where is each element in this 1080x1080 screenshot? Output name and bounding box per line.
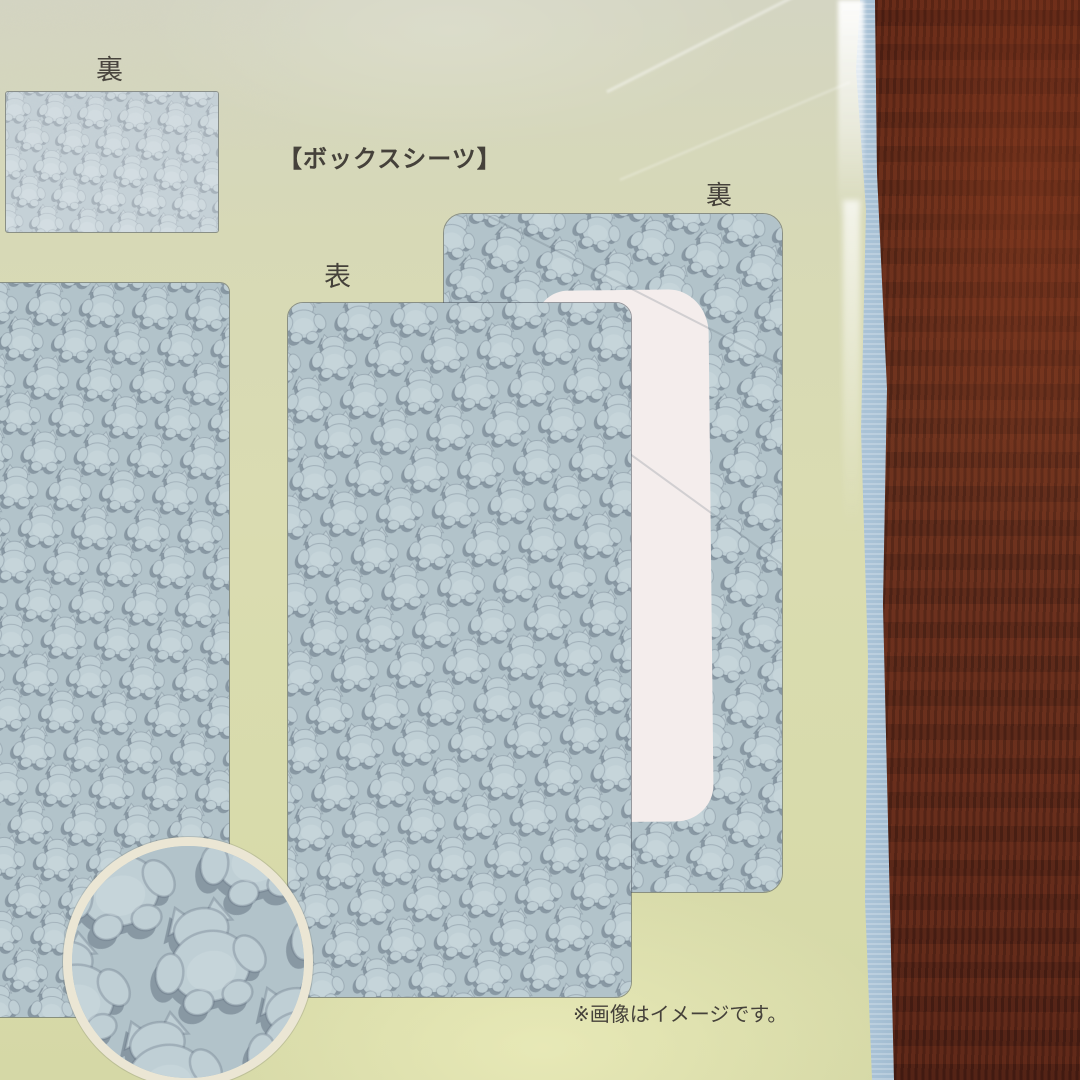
wood-table-background [868, 0, 1080, 1080]
snorlax-pattern-swatch [288, 303, 631, 997]
label-front: 表 [324, 264, 351, 291]
label-back-right: 裏 [706, 183, 732, 209]
label-back-top-left: 裏 [96, 57, 123, 84]
pattern-detail-circle [63, 837, 313, 1080]
panel-front-sheet [287, 302, 632, 998]
snorlax-pattern-zoom [72, 846, 304, 1078]
image-disclaimer: ※画像はイメージです。 [573, 1004, 787, 1024]
product-title: 【ボックスシーツ】 [278, 147, 502, 171]
panel-back-small [5, 91, 219, 233]
glare-wash [6, 92, 218, 232]
packaged-sheet-product-photo: 裏 【ボックスシーツ】 表 裏 ※画像はイメージです。 [0, 0, 1080, 1080]
